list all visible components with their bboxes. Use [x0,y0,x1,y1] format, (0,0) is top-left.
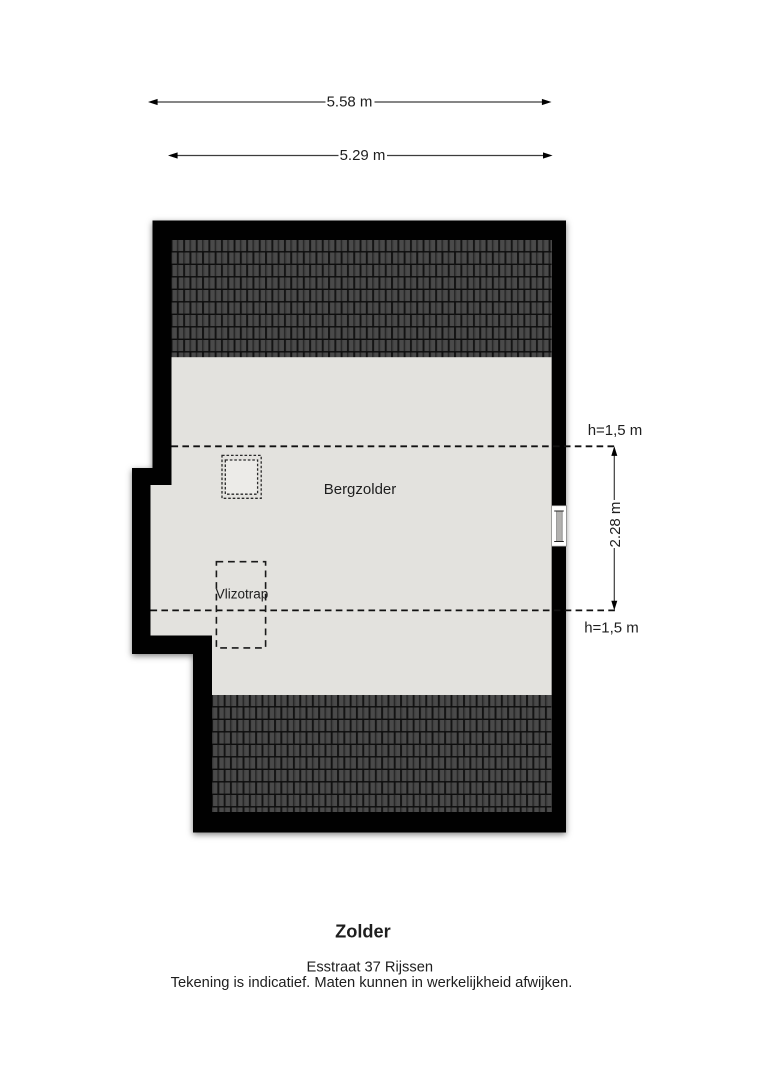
svg-text:Tekening is indicatief. Maten: Tekening is indicatief. Maten kunnen in … [171,975,573,991]
svg-text:h=1,5 m: h=1,5 m [588,422,643,439]
svg-text:Bergzolder: Bergzolder [324,481,397,498]
svg-text:Zolder: Zolder [335,922,391,942]
svg-text:h=1,5 m: h=1,5 m [584,620,639,637]
svg-text:2.28 m: 2.28 m [607,502,624,548]
svg-text:5.29 m: 5.29 m [340,147,386,164]
svg-text:Esstraat 37 Rijssen: Esstraat 37 Rijssen [307,960,434,976]
svg-text:5.58 m: 5.58 m [327,94,373,111]
svg-text:Vlizotrap: Vlizotrap [216,586,269,601]
